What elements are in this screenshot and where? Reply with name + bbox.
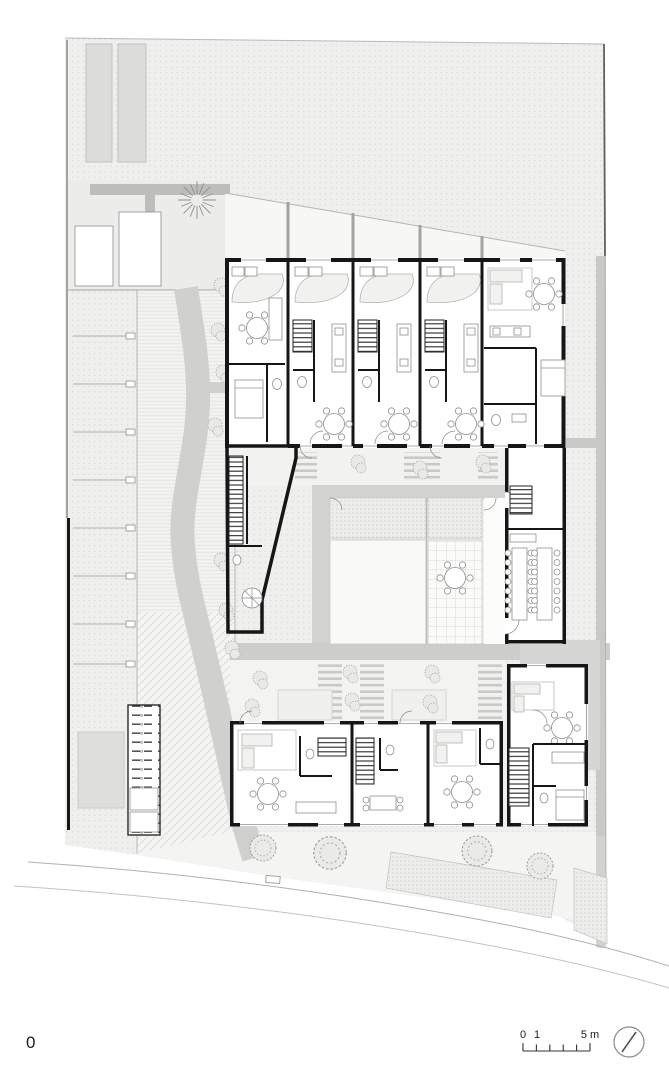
courtyard-walkway [484,498,506,644]
upper-rowhouses [225,258,566,448]
site-plan-drawing: 0 1 5 m 0 [0,0,669,1080]
paved-terrace-grid [428,540,482,644]
tree [250,835,276,861]
garden-shed [78,732,124,808]
neighbor-building [86,44,112,162]
terrace-strip [228,448,506,486]
east-path [596,256,606,440]
road-marker [266,876,280,884]
planting-bed [360,664,384,720]
path-connector [196,382,228,393]
terrace-slab [278,690,332,720]
planter-bed [330,498,426,538]
terrace-slab [392,690,446,720]
east-path [596,438,606,836]
planter-bed [428,498,482,538]
scale-label-5m: 5 m [581,1029,599,1041]
stair [509,748,529,806]
central-courtyard [330,498,506,644]
stair [510,486,532,514]
planting-bed [478,664,502,720]
scale-label-1: 1 [534,1029,540,1041]
tree [527,853,553,879]
tree [314,837,347,870]
corner-house [507,664,588,827]
floor-plan-page: 0 1 5 m 0 [0,0,669,1080]
courtyard-path-west [312,485,330,658]
level-label: 0 [26,1033,35,1052]
tree [462,836,492,866]
scale-label-0: 0 [520,1029,526,1041]
courtyard-lawn [330,540,426,644]
neighbor-building [118,44,146,162]
common-room-wing [505,448,566,644]
lower-rowhouses [230,721,503,827]
